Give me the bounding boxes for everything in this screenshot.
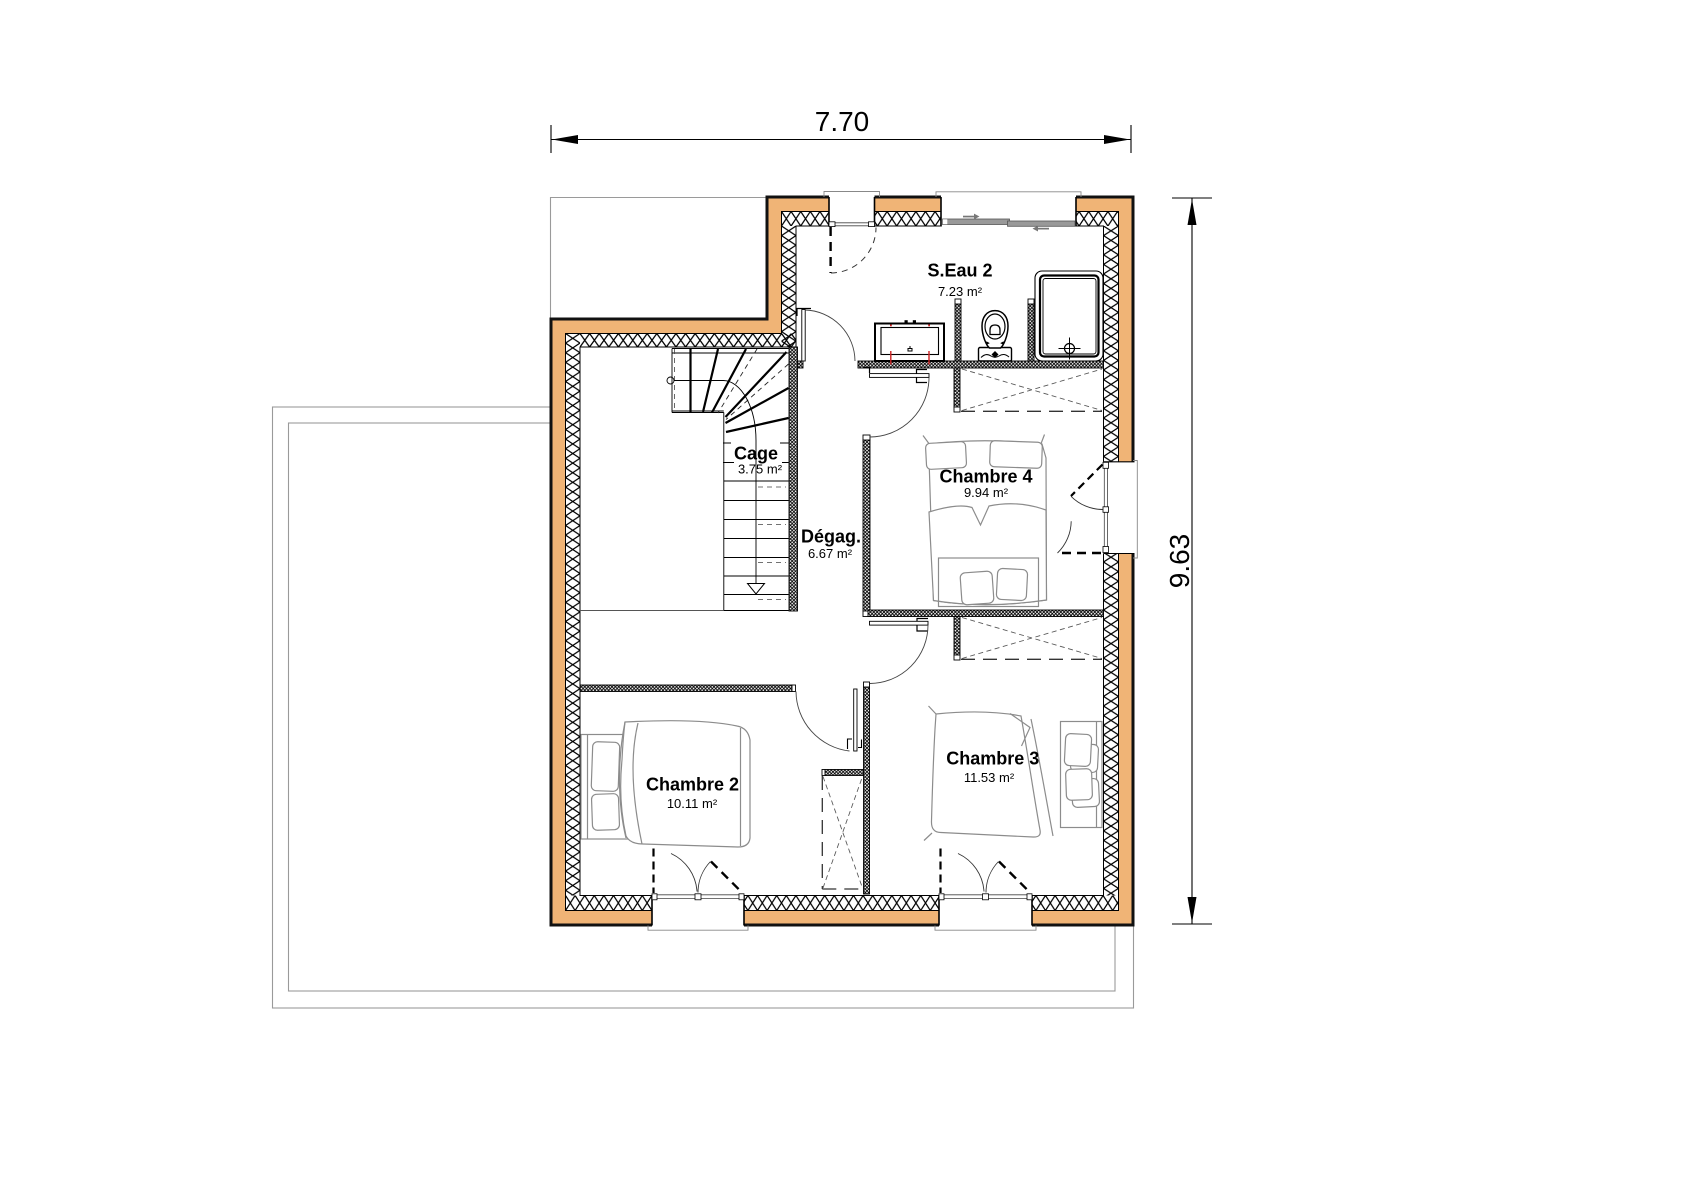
svg-text:S.Eau 2: S.Eau 2 bbox=[927, 261, 992, 281]
svg-text:9.63: 9.63 bbox=[1164, 534, 1195, 589]
svg-text:Chambre 4: Chambre 4 bbox=[939, 467, 1032, 487]
svg-text:Cage: Cage bbox=[734, 444, 778, 464]
svg-text:11.53 m²: 11.53 m² bbox=[964, 770, 1015, 785]
svg-text:Dégag.: Dégag. bbox=[801, 527, 861, 547]
svg-text:10.11 m²: 10.11 m² bbox=[667, 796, 718, 811]
svg-text:6.67 m²: 6.67 m² bbox=[808, 546, 853, 561]
svg-text:Chambre 3: Chambre 3 bbox=[946, 749, 1039, 769]
svg-text:3.75 m²: 3.75 m² bbox=[738, 462, 783, 477]
svg-text:Chambre 2: Chambre 2 bbox=[646, 775, 739, 795]
svg-text:7.23 m²: 7.23 m² bbox=[938, 284, 983, 299]
svg-text:9.94 m²: 9.94 m² bbox=[964, 485, 1009, 500]
svg-text:7.70: 7.70 bbox=[815, 106, 870, 137]
